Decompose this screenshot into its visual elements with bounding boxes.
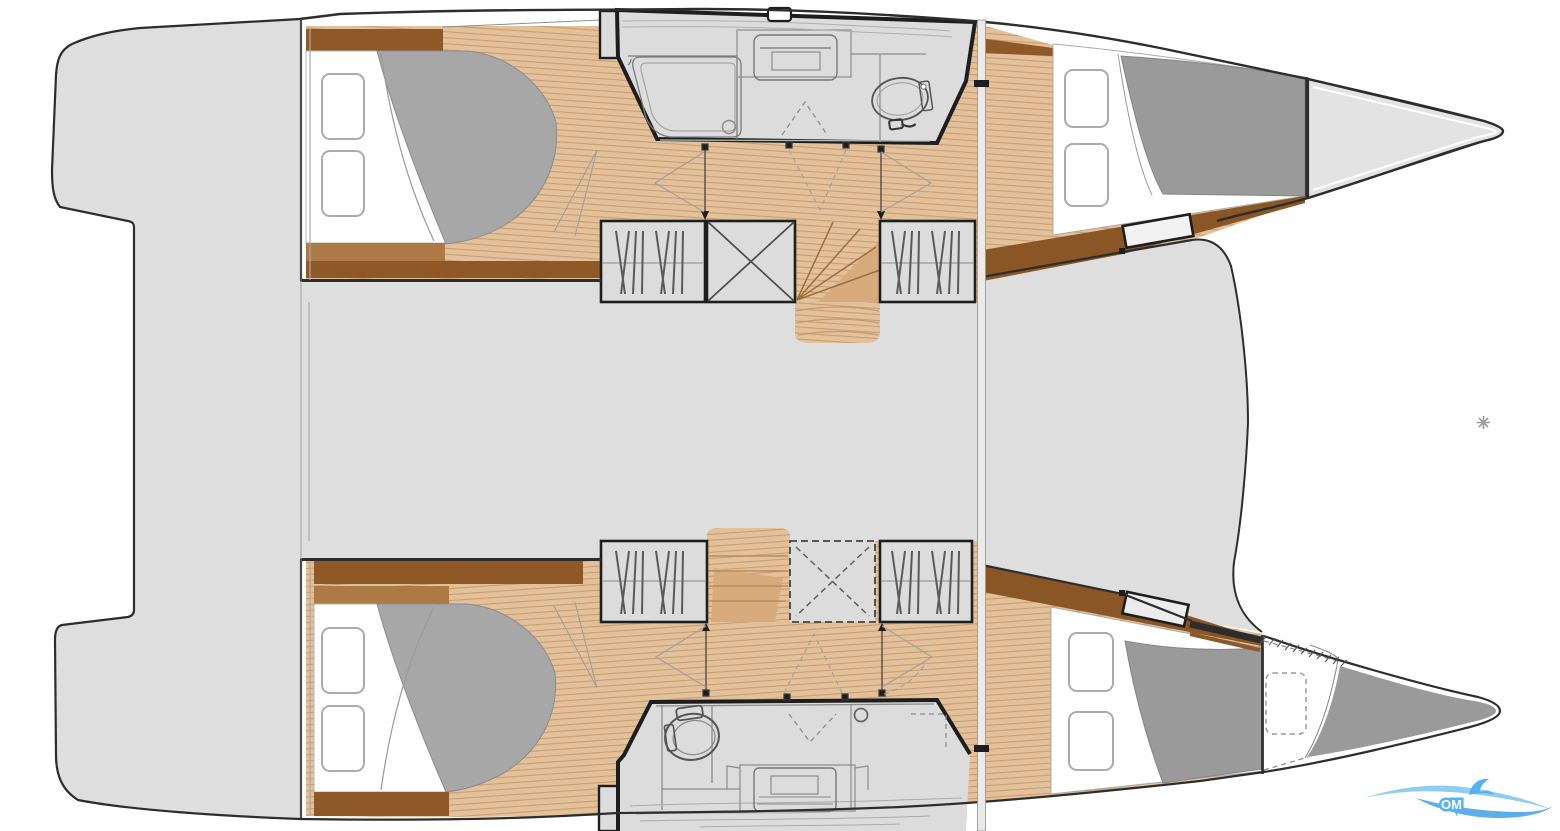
svg-text:OM: OM	[1441, 797, 1462, 812]
